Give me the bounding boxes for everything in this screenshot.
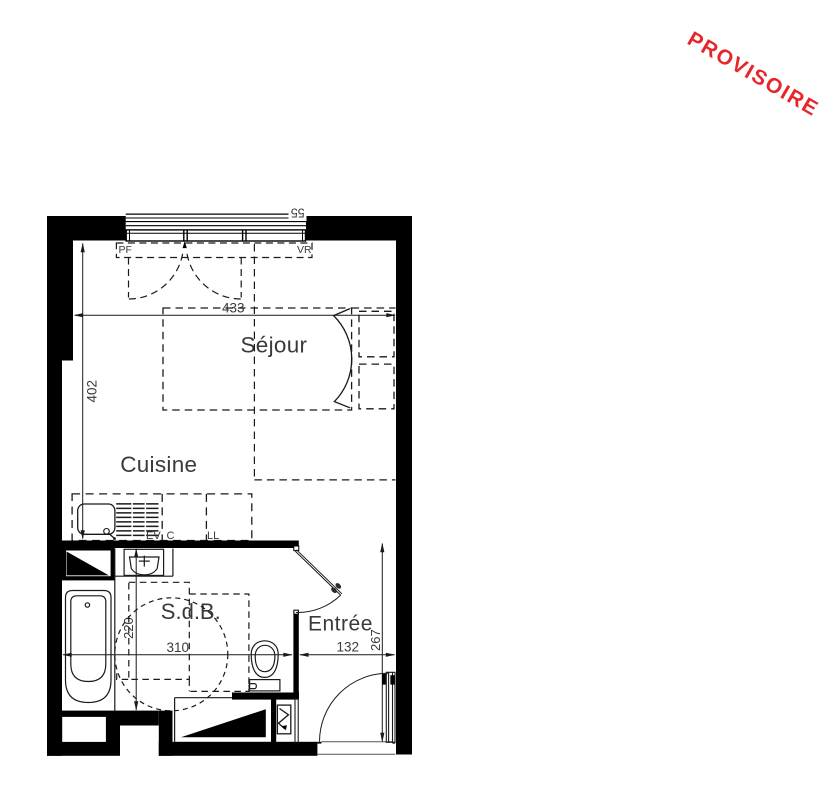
svg-text:C: C: [167, 530, 175, 542]
svg-text:S.d.B.: S.d.B.: [161, 599, 221, 624]
svg-text:PF: PF: [119, 244, 132, 256]
svg-text:Séjour: Séjour: [241, 332, 308, 357]
svg-text:LL: LL: [207, 530, 219, 542]
svg-text:267: 267: [368, 629, 383, 651]
svg-text:402: 402: [85, 380, 100, 403]
svg-text:55: 55: [291, 206, 305, 220]
svg-text:Cuisine: Cuisine: [120, 452, 197, 477]
svg-text:132: 132: [337, 640, 360, 655]
svg-text:310: 310: [167, 640, 190, 655]
svg-text:EV: EV: [146, 530, 161, 542]
svg-text:VR: VR: [297, 244, 312, 256]
svg-text:Entrée: Entrée: [308, 613, 373, 636]
svg-text:PROVISOIRE: PROVISOIRE: [684, 27, 823, 121]
